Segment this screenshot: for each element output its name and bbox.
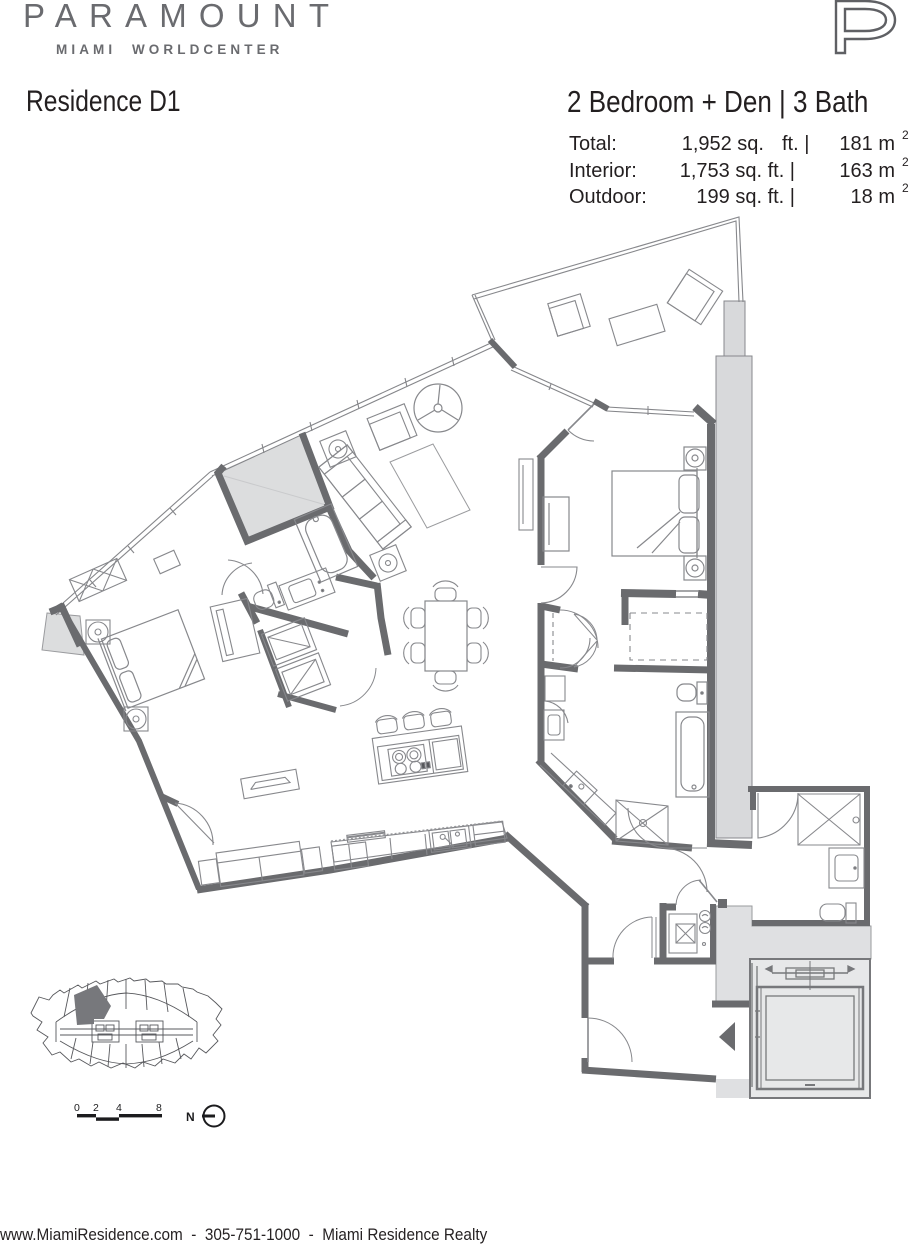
svg-text:0: 0 xyxy=(74,1102,80,1114)
svg-text:2: 2 xyxy=(93,1102,99,1114)
svg-text:N: N xyxy=(186,1110,195,1124)
svg-text:4: 4 xyxy=(116,1102,122,1114)
svg-text:8: 8 xyxy=(156,1102,162,1114)
